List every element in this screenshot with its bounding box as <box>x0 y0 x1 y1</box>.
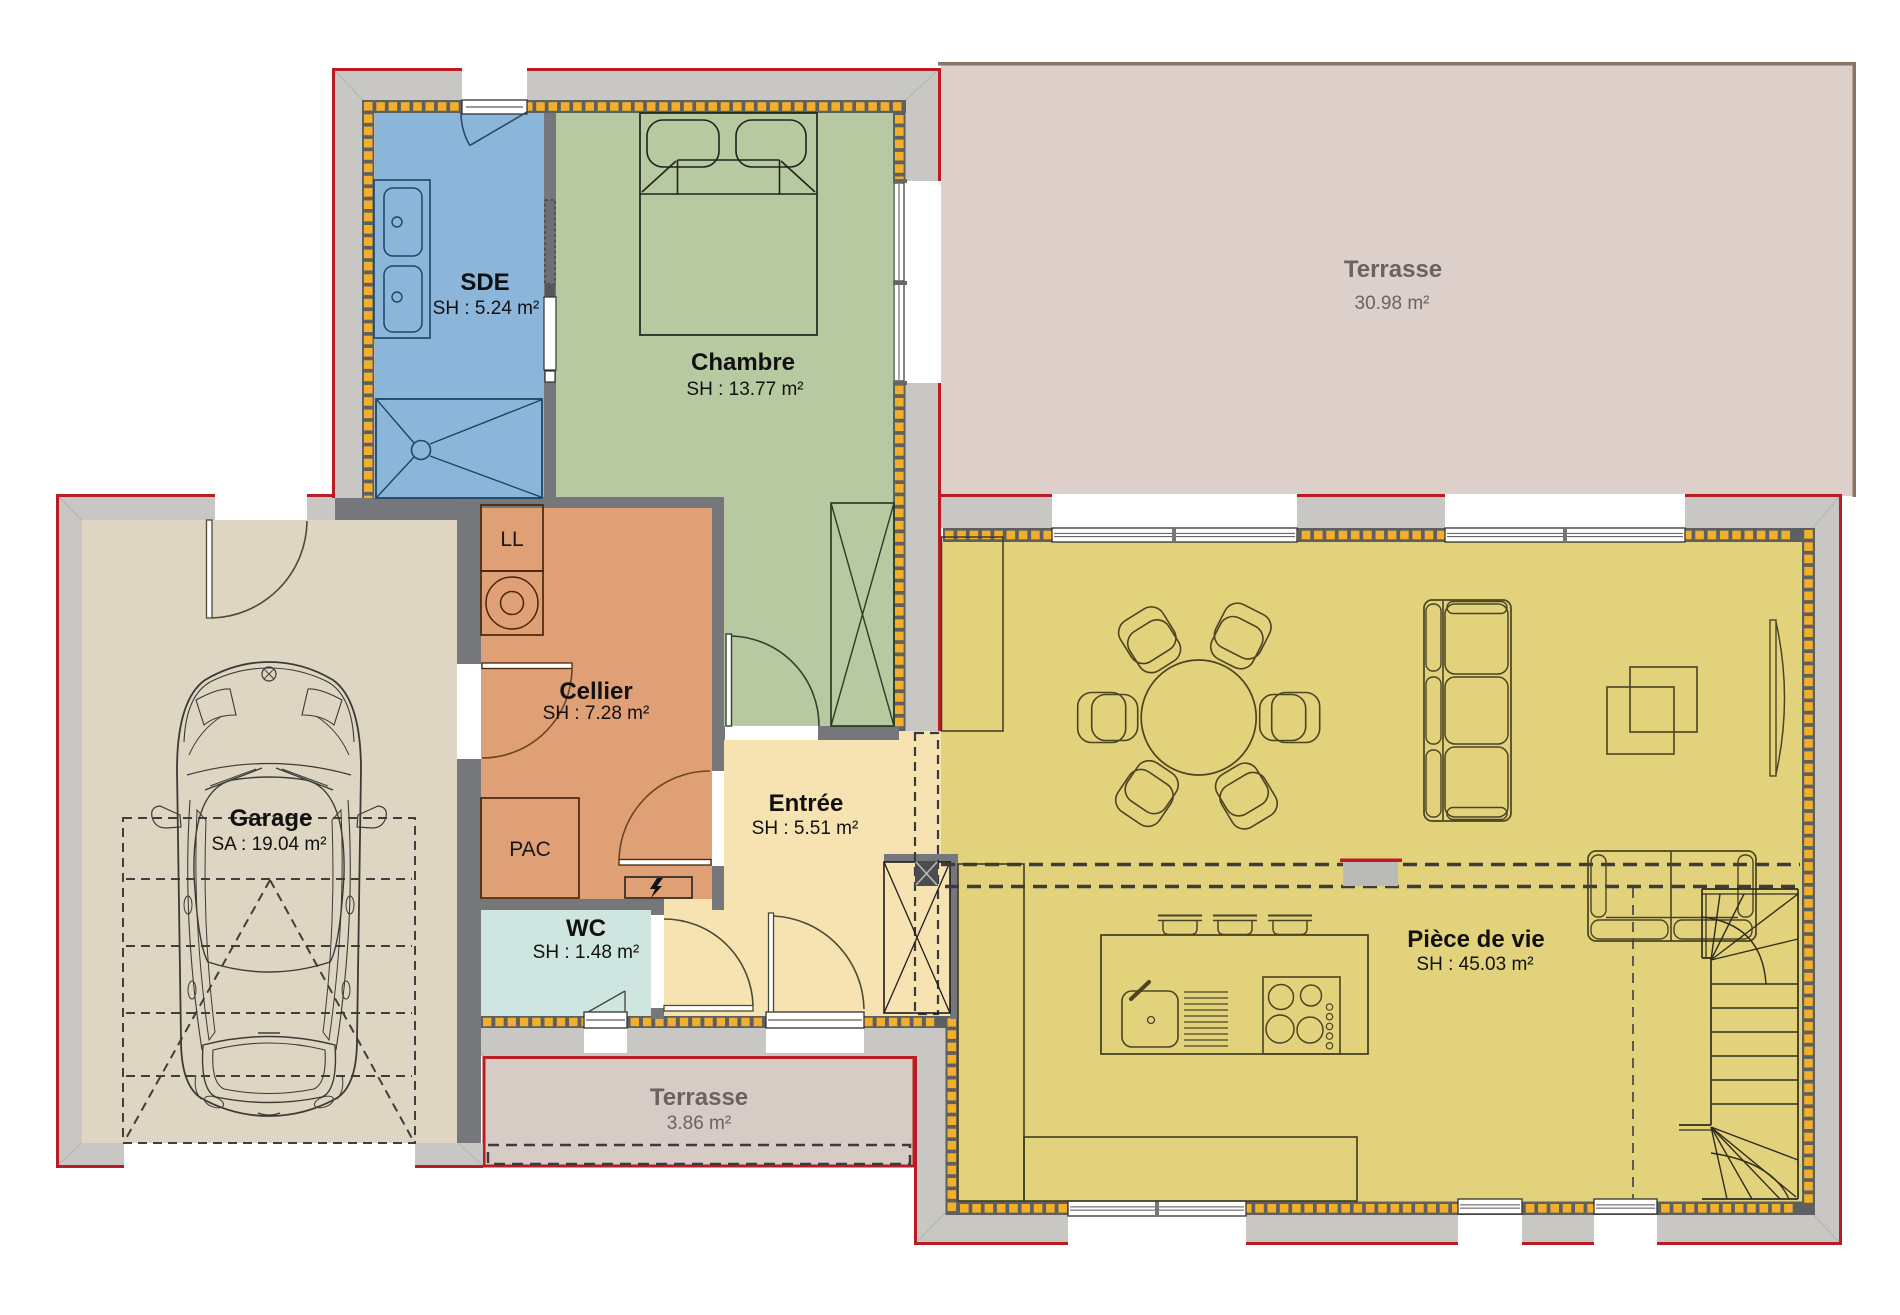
svg-text:SH : 5.51 m²: SH : 5.51 m² <box>752 818 859 839</box>
svg-text:SH : 13.77 m²: SH : 13.77 m² <box>686 379 803 400</box>
svg-text:Cellier: Cellier <box>559 678 632 705</box>
svg-text:3.86 m²: 3.86 m² <box>667 1113 731 1134</box>
svg-text:SA : 19.04 m²: SA : 19.04 m² <box>211 834 326 855</box>
svg-text:Terrasse: Terrasse <box>650 1084 748 1111</box>
svg-text:Chambre: Chambre <box>691 349 795 376</box>
svg-text:30.98 m²: 30.98 m² <box>1355 293 1430 314</box>
svg-text:LL: LL <box>500 528 523 551</box>
svg-text:Terrasse: Terrasse <box>1344 256 1442 283</box>
svg-text:SH : 7.28 m²: SH : 7.28 m² <box>543 703 650 724</box>
svg-text:Pièce de vie: Pièce de vie <box>1407 926 1544 953</box>
svg-text:Entrée: Entrée <box>769 790 844 817</box>
svg-text:Garage: Garage <box>230 805 313 832</box>
svg-text:SH : 5.24 m²: SH : 5.24 m² <box>433 298 540 319</box>
svg-text:PAC: PAC <box>509 838 551 861</box>
svg-text:SH : 45.03 m²: SH : 45.03 m² <box>1416 954 1533 975</box>
svg-text:SH : 1.48 m²: SH : 1.48 m² <box>533 942 640 963</box>
svg-text:WC: WC <box>566 915 606 942</box>
svg-text:SDE: SDE <box>460 269 509 296</box>
